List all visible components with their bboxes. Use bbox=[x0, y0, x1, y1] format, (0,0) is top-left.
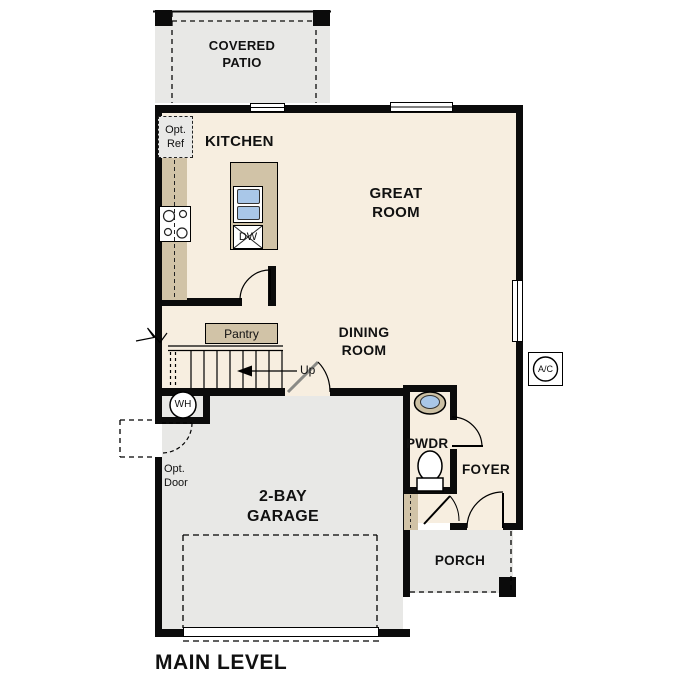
pwdr-door-swing bbox=[452, 417, 482, 447]
porch-label: PORCH bbox=[417, 552, 503, 569]
burner-2 bbox=[180, 211, 187, 218]
ac-label: A/C bbox=[532, 364, 559, 376]
garage-label: 2-BAY GARAGE bbox=[223, 487, 343, 528]
foyer-label: FOYER bbox=[462, 461, 510, 478]
pantry-label: Pantry bbox=[205, 327, 278, 342]
toilet-tank bbox=[417, 478, 443, 491]
covered-patio-label: COVERED PATIO bbox=[192, 38, 292, 71]
burner-1 bbox=[164, 211, 175, 222]
opt-door-swing bbox=[162, 423, 192, 453]
opt-ref-label: Opt. Ref bbox=[160, 123, 191, 151]
dining-room-label: DINING ROOM bbox=[316, 324, 412, 360]
pwdr-sink-bowl bbox=[421, 396, 440, 409]
toilet-bowl bbox=[418, 451, 442, 481]
great-room-label: GREAT ROOM bbox=[346, 184, 446, 222]
opt-door-label: Opt. Door bbox=[164, 462, 200, 490]
floor-plan: COVERED PATIO KITCHEN GREAT ROOM DINING … bbox=[0, 0, 687, 687]
burner-4 bbox=[177, 228, 187, 238]
wall-break-symbol bbox=[136, 328, 167, 343]
up-label: Up bbox=[300, 363, 315, 378]
up-arrow-head bbox=[237, 366, 252, 377]
front-door-swing bbox=[467, 492, 503, 528]
burner-3 bbox=[165, 229, 172, 236]
kitchen-label: KITCHEN bbox=[205, 132, 274, 151]
dw-label: DW bbox=[233, 230, 263, 244]
pwdr-label: PWDR bbox=[406, 435, 448, 452]
stair-treads bbox=[191, 351, 282, 388]
hall-closet-door-leaf bbox=[424, 496, 450, 524]
main-level-title: MAIN LEVEL bbox=[155, 650, 287, 677]
hall-closet-door-swing bbox=[450, 496, 459, 521]
garage-entry-door-swing bbox=[318, 362, 330, 392]
wh-label: WH bbox=[170, 399, 196, 412]
pantry-hall-door-swing bbox=[240, 270, 270, 300]
